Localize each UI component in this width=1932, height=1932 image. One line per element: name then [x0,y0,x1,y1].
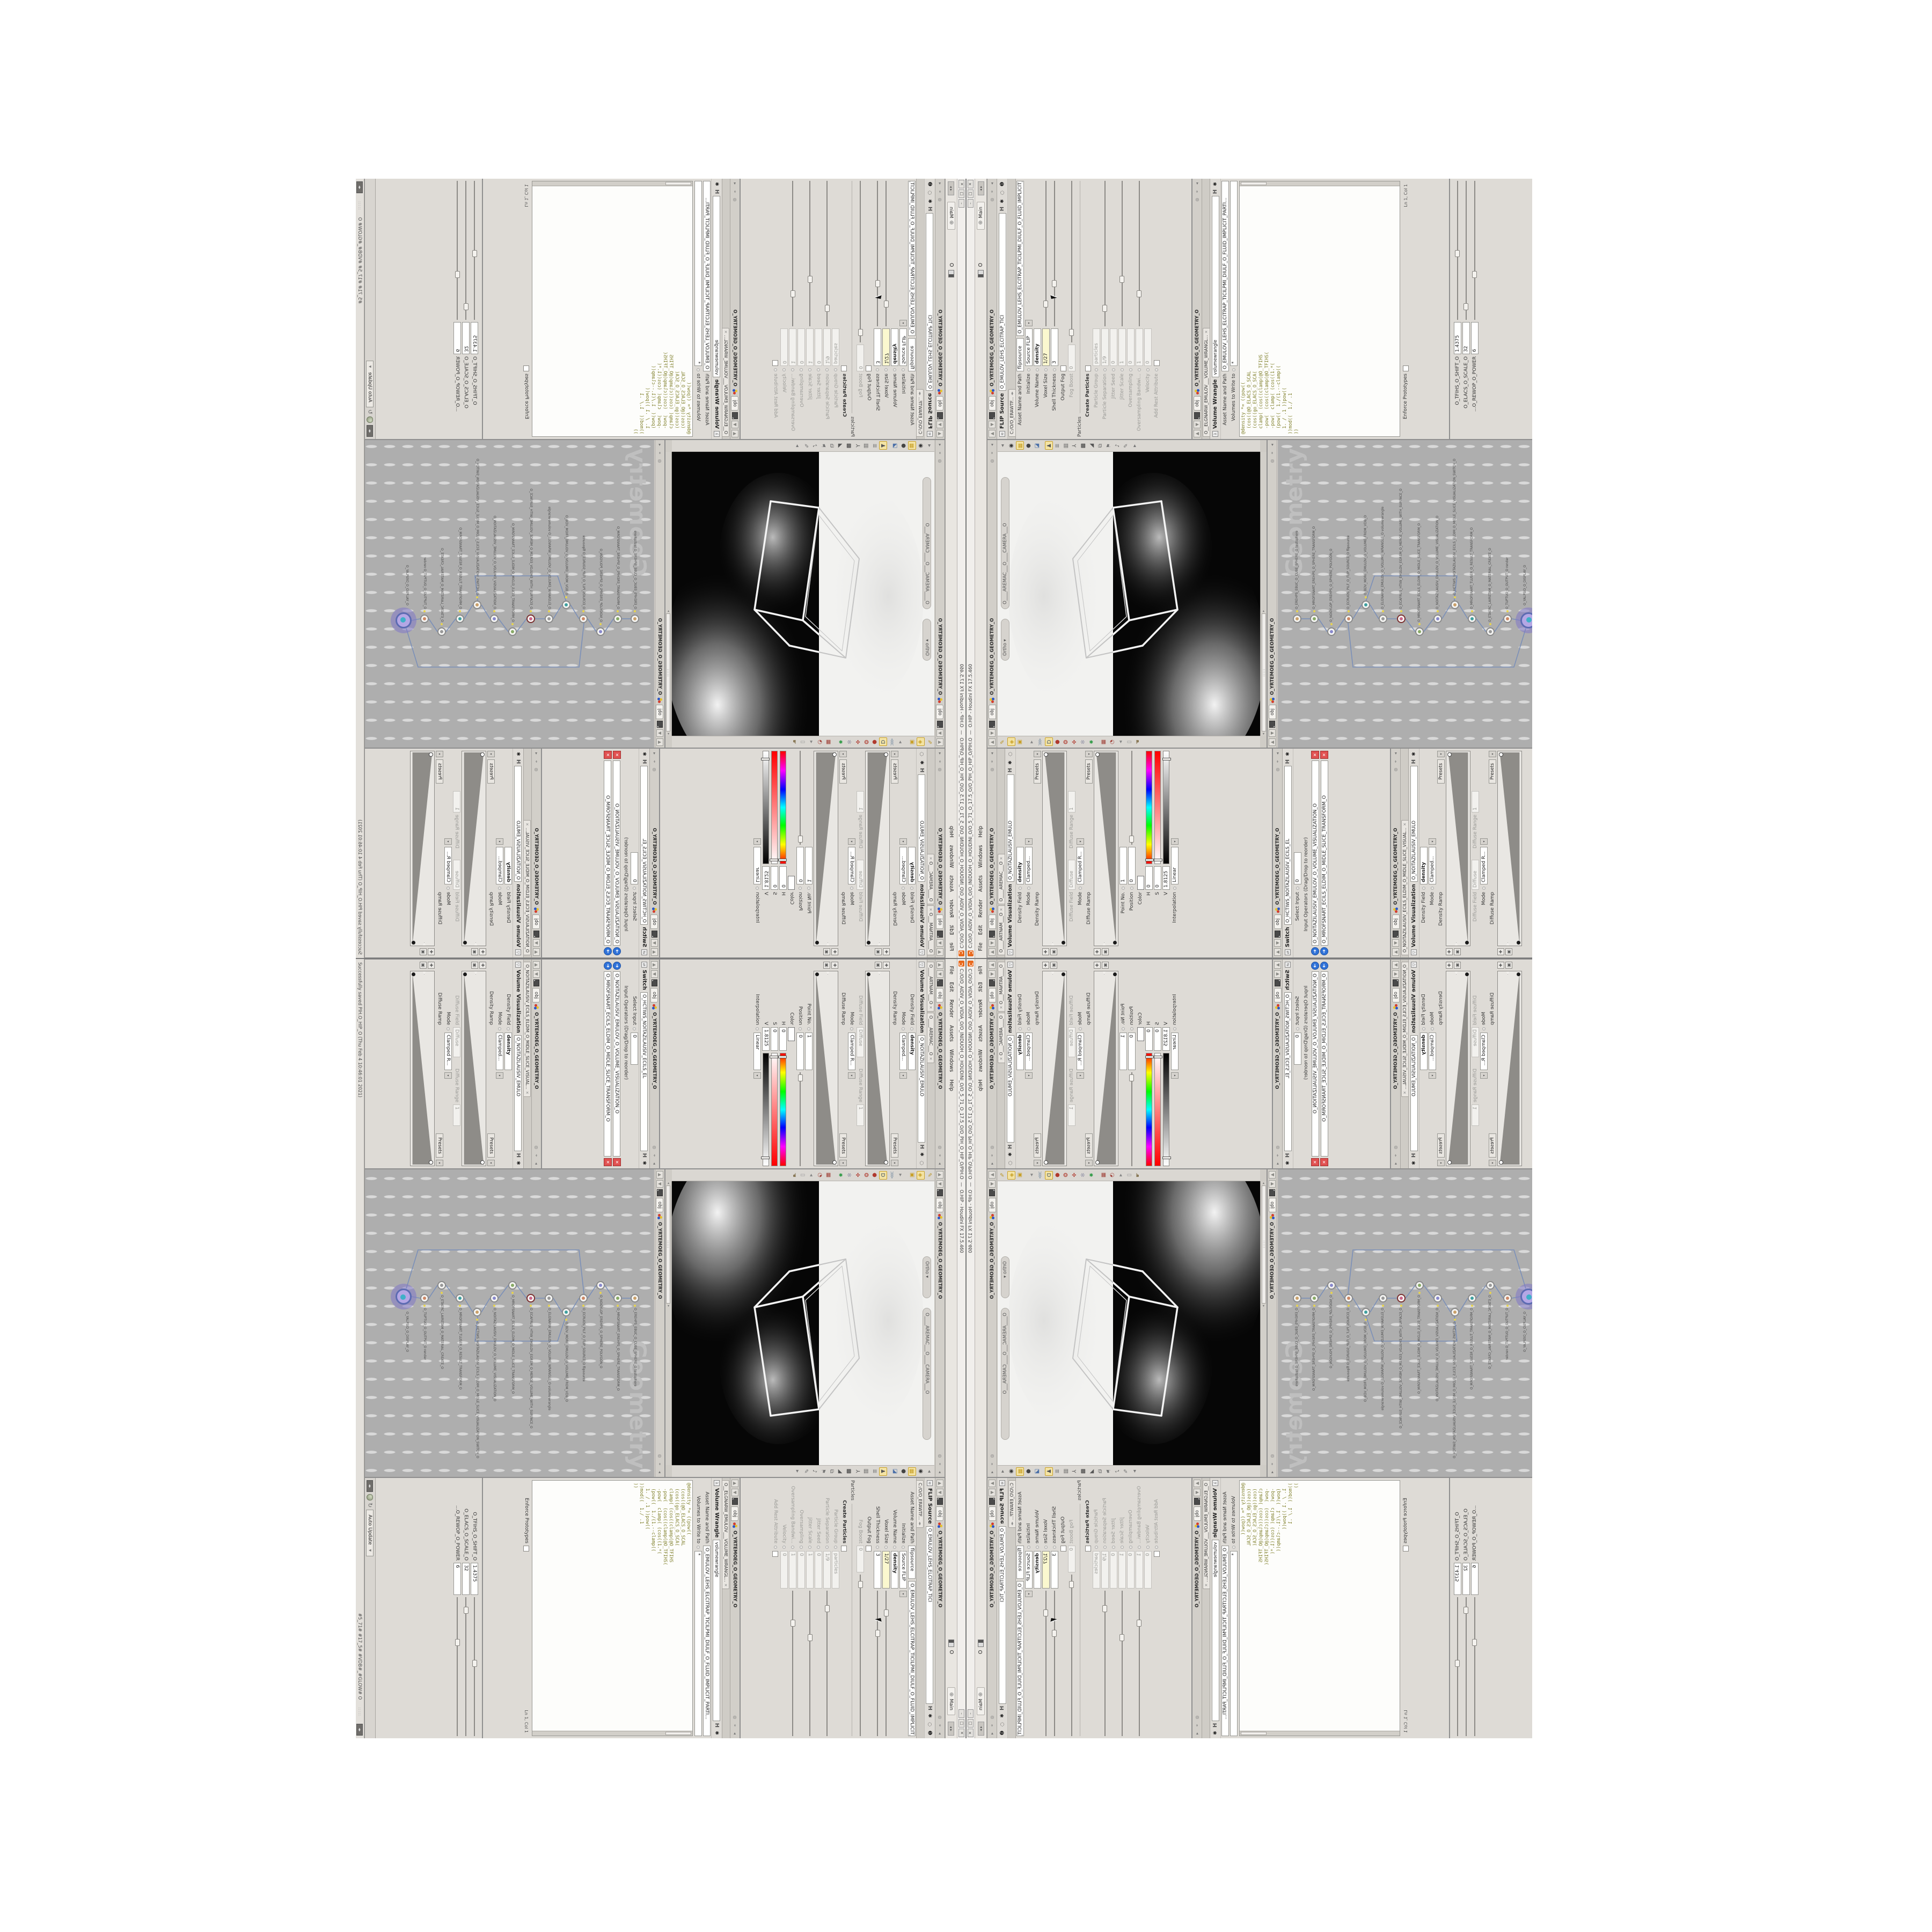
point-no-field[interactable]: 1 [805,1033,813,1070]
ramp-box-icon[interactable]: ▣ [1505,948,1512,955]
pin-icon[interactable]: ⌖ [989,1722,996,1729]
ramp-end-handle[interactable] [832,1160,837,1165]
node-name-field[interactable]: O_EMULOV_LEHS_ELCITRAP_TICI [926,1526,934,1704]
persp-view-icon[interactable]: ● [1024,1467,1033,1476]
diffuse-mode-field[interactable]: Clamped R... [1077,1033,1084,1070]
dropdown-arrows-icon[interactable]: ▾ [1171,838,1179,845]
network-node[interactable]: O_MROFSNART_ECILS_ELDIM_O_MIDLE_SLICE_TR… [1415,1281,1424,1290]
collapse-icon[interactable]: ◂ [533,1160,540,1167]
menu-scroll-handle[interactable]: ◂ ▸ [978,1722,984,1736]
node-flag-badge[interactable] [476,596,478,598]
obj-tab[interactable]: obj [1392,988,1400,1002]
desktop-clip-icon[interactable] [989,931,995,938]
nav-back-icon[interactable]: ▲ [731,1480,738,1487]
density-mode-field[interactable]: Clamped... [1025,1033,1033,1070]
pin-needle-icon[interactable]: ✎ [802,1467,810,1476]
network-node[interactable]: O_ECAFRUS_HTIW_EMULOV_EGREM_O_MERGE_VOLU… [526,1294,535,1302]
particle-group-field[interactable]: particles [832,1551,839,1589]
presets-menu-icon[interactable]: ▾ [1489,1160,1496,1166]
network-node[interactable]: O_BDV_MORF_EMULOV_O_VOLUME_FROM_VDB_O [562,601,570,609]
output-fog-checkbox[interactable] [866,365,872,371]
lasso-tool-icon[interactable]: ◔ [816,1171,824,1180]
obj-tab[interactable]: obj [651,914,658,929]
delete-input-button[interactable]: ✕ [613,751,621,759]
nav-forward-icon[interactable]: ▼ [1274,970,1281,978]
jitter-scale-field[interactable]: 1 [806,328,814,366]
target-icon[interactable]: ◎ [1269,1453,1276,1459]
network-path[interactable]: O_YRTEMOEG_O_GEOMETRY_O [652,1012,657,1089]
pane-tab[interactable]: O_NOITAZILAUSIV_ECILS_ELDIM_O_MIDLE_SLIC… [1401,962,1408,1097]
ramp-end-handle[interactable] [1499,752,1503,757]
diffuse-field-field[interactable]: Diffuse [1472,860,1479,890]
obj-tab[interactable]: obj [989,1506,996,1521]
title-bar[interactable]: C:/O/O_AIDIV_O_VIDIA_O/O_INIDUOH_O_HOUDI… [957,179,965,958]
node-name-field[interactable]: volumewrangle [1212,196,1219,377]
persp-view-icon[interactable]: ● [1024,442,1033,450]
nav-back-icon[interactable]: ▲ [936,1480,943,1487]
network-node[interactable]: O_ECRUOS_PILF_O_FLIP_SOURCE_O flipsource [1344,1294,1353,1302]
h-gradient-slider[interactable] [780,1053,786,1166]
gear-icon[interactable]: ✱ [919,1151,925,1158]
ramp-add-point-icon[interactable]: ✚ [1497,962,1504,969]
pane-corner-control[interactable]: ◂▸ [356,181,363,193]
interpolation-field[interactable]: Linear [753,1033,761,1070]
menu-edit[interactable]: Edit [977,921,985,939]
presets-button[interactable]: Presets [1085,759,1093,784]
ramp-marker[interactable] [877,971,882,975]
voxel-size-slider[interactable] [883,1591,889,1736]
particle-separation-slider[interactable] [1102,181,1108,326]
s-gradient-slider[interactable] [771,1053,778,1166]
node-name-field[interactable]: volumewrangle [1212,1540,1219,1721]
obj-tab[interactable]: obj [936,1198,944,1212]
maximize-button[interactable]: □ [968,1719,974,1728]
network-node[interactable]: O_MROFSNART_EREHPS_O_SPHERE_TRANSFORM_O [1310,614,1319,623]
pin-icon[interactable]: ⌖ [533,1152,540,1159]
tab-close-icon[interactable]: ✕ [524,1091,530,1094]
code-scrollbar[interactable] [1240,1731,1400,1736]
nav-back-icon[interactable]: ▲ [989,738,996,746]
s-gradient-slider[interactable] [1154,751,1161,864]
red-ball-tool-icon[interactable]: ● [870,738,879,747]
play-arrow-icon[interactable]: ▸ [1028,1171,1036,1180]
network-path[interactable]: O_YRTEMOEG_O_GEOMETRY_O [938,828,943,905]
target-icon[interactable]: ◎ [1275,1144,1281,1151]
label-strip-icon[interactable]: ≣ [870,442,879,450]
orbit-tool-icon[interactable]: ❂ [1062,738,1070,747]
network-path[interactable]: O_YRTEMOEG_O_GEOMETRY_O [938,1531,943,1607]
camera-person-icon[interactable]: ♟ [1045,1467,1053,1476]
star-tool-icon[interactable]: ✹ [836,1171,844,1180]
ramp-box-icon[interactable]: ▣ [471,948,478,955]
pin-icon[interactable]: ⌖ [937,1722,943,1729]
particle-separation-slider[interactable] [824,1591,830,1736]
network-node[interactable]: O_HCTIWS_NOITAZILAUSIV_ECILS_ELDIM_O_MID… [1451,601,1459,609]
viewport-canvas[interactable]: Ortho ▾ O____AREMAC___O____CAMERA___O [672,1181,934,1465]
scale-slider[interactable] [1463,181,1469,320]
initialize-field[interactable]: Source FLIP [1025,1551,1033,1589]
presets-button[interactable]: Presets [891,1133,898,1158]
ramp-add-point-icon[interactable]: ✚ [1446,962,1453,969]
nav-forward-icon[interactable]: ▼ [989,729,996,737]
presets-button[interactable]: Presets [1034,1133,1041,1158]
nav-back-icon[interactable]: ▲ [1392,948,1399,956]
desktop-clip-icon[interactable] [989,1498,995,1505]
slider-handle[interactable] [875,280,880,287]
position-field[interactable]: 0 [796,1033,804,1070]
ramp-start-handle[interactable] [815,972,819,976]
slider-handle[interactable] [791,1620,795,1627]
points-cube-icon[interactable]: ▩ [1079,442,1087,450]
ramp-fin-icon[interactable]: ◢ [1088,442,1096,450]
snap-diamond-icon[interactable]: ◈ [917,738,925,747]
pin-icon[interactable]: ⌖ [1393,1152,1399,1159]
desktop-clip-icon[interactable] [657,721,663,728]
ramp-marker[interactable] [1102,942,1107,946]
back-arrow-icon[interactable]: ◂ [1117,1171,1125,1180]
target-icon[interactable]: ◎ [657,458,663,464]
expand-arrow-icon[interactable]: ▸ [793,442,801,450]
dropdown-arrows-icon[interactable]: ▾ [1077,1072,1084,1079]
pane-split-control[interactable]: ◂▸ [367,1480,374,1492]
v-gradient-slider[interactable] [763,751,769,864]
quad-layout-icon[interactable]: ▦ [1016,442,1024,450]
target-icon[interactable]: ◎ [937,766,943,773]
pin-icon[interactable]: ⌖ [1194,188,1201,195]
camera-pill[interactable]: O____AREMAC___O____CAMERA___O [923,477,931,609]
node-flag-badge[interactable] [1348,610,1350,612]
ramp-add-point-icon[interactable]: ✚ [479,948,486,955]
network-path[interactable]: O_YRTEMOEG_O_GEOMETRY_O [1270,1222,1275,1299]
fog-boost-field[interactable]: 0 [857,1546,864,1572]
ramp-add-point-icon[interactable]: ✚ [1446,948,1453,955]
node-flag-badge[interactable] [1330,1292,1333,1294]
network-node[interactable]: O_ETAERC_LAIRETAM_O_MATERIAL_CREATE_O [1486,1281,1495,1290]
expand-arrow-icon[interactable]: ▸ [1131,1467,1139,1476]
jitter-scale-field[interactable]: 1 [1118,328,1126,366]
gear-icon[interactable]: ✱ [1411,751,1417,757]
particle-separation-slider[interactable] [1102,1591,1108,1736]
network-node[interactable]: O_MROFSNART_TLUSER_O_RESULT_TRANSFORM_O [456,614,464,623]
density-field-field[interactable]: density [908,847,916,884]
magnifier-icon[interactable]: ◌ [999,189,1006,196]
particles-section[interactable]: Particles [1076,1478,1084,1738]
nav-back-icon[interactable]: ▲ [936,961,943,969]
collapse-icon[interactable]: ◂ [657,1469,663,1475]
desktop-clip-icon[interactable] [989,412,995,419]
ramp-start-handle[interactable] [1465,941,1469,945]
pane-split-control[interactable]: ◂▸ [367,425,374,437]
star-tool-icon[interactable]: ✹ [1088,1171,1096,1180]
nav-back-icon[interactable]: ▲ [936,738,943,746]
obj-tab[interactable]: obj [1194,396,1201,411]
volumes-field[interactable]: * [1230,1551,1238,1736]
asset-name-field[interactable]: flipsource [1016,338,1024,371]
slider-mark[interactable] [1145,1056,1154,1058]
dropdown-arrows-icon[interactable]: ▾ [1429,1072,1436,1079]
desktop-clip-icon[interactable] [1275,979,1280,986]
add-rest-attribute-checkbox[interactable] [773,360,779,366]
nav-back-icon[interactable]: ▲ [533,961,540,969]
volumes-field[interactable]: * [694,181,702,366]
points-cube-icon[interactable]: ▩ [845,1467,853,1476]
density-field-field[interactable]: density [1016,847,1024,884]
network-node[interactable]: O_TUPTUO_O_OUTPUT_O render [420,1294,429,1302]
dropdown-arrows-icon[interactable]: ▾ [848,838,855,845]
pane-tab[interactable]: O_NOITAZILAUSIV_ECILS_ELDIM_O_MIDLE_SLIC… [524,962,531,1097]
slider-handle[interactable] [1052,280,1057,287]
pin-icon[interactable]: ⌖ [652,758,658,765]
refresh-icon[interactable]: ↻ [367,1503,374,1507]
network-path[interactable]: O_YRTEMOEG_O_GEOMETRY_O [1275,1012,1280,1089]
dropdown-arrows-icon[interactable]: ▾ [1025,838,1033,845]
nav-forward-icon[interactable]: ▼ [989,1180,996,1188]
play-arrow-icon[interactable]: ▸ [896,738,904,747]
pane-tab[interactable]: O____AREMAC___O✕ [998,854,1005,904]
snap-diamond-icon[interactable]: ◈ [1007,738,1015,747]
presets-button[interactable]: Presets [487,759,495,784]
ramp-start-handle[interactable] [1062,972,1065,976]
expand-arrow-icon[interactable]: ▸ [793,1467,801,1476]
node-flag-badge[interactable] [617,610,619,612]
pin-icon[interactable]: ⌖ [937,450,943,456]
star-tool-icon[interactable]: ✹ [836,738,844,747]
menu-o[interactable]: O [978,1650,984,1654]
asset-path-field[interactable]: O_EMULOV_LEHS_ELCITRAP_TICILPMI_DIULF_O_… [1016,1581,1024,1736]
presets-button[interactable]: Presets [1085,1133,1093,1158]
pane-tab[interactable]: O____AREMAC___O✕ [927,1013,934,1063]
node-name-field[interactable]: O_HCTIWS_NOITAZILAUSIV_ECILS_EL [641,766,648,925]
select-input-field[interactable]: 0 [1294,1033,1301,1065]
oversampling-field[interactable]: 0 [1127,1551,1135,1589]
wrangle-tab[interactable]: O__ELGNARW_EMULOV___VOLUME_WRANGL...✕ [1203,328,1210,437]
interpolation-field[interactable]: Linear [1171,1033,1179,1070]
viewport-scrollbar[interactable]: ◂:::::▸ [665,1181,672,1465]
delete-input-button[interactable]: ✕ [1320,751,1328,759]
particle-group-field[interactable]: particles [1093,328,1100,366]
ramp-box-icon[interactable]: ▣ [420,962,427,969]
node-flag-badge[interactable] [1489,1292,1491,1294]
node-name-field[interactable]: O_EMULOV_LEHS_ELCITRAP_TICI [999,1526,1006,1704]
barrel-icon[interactable]: ▥ [862,442,870,450]
pane-tab[interactable]: O_NOITAZILAUSIV_ECILS_ELDIM_O_MIDLE_SLIC… [524,820,531,955]
nav-back-icon[interactable]: ▲ [989,430,996,437]
asset-path-field[interactable]: O_EMULOV_LEHS_ELCITRAP_TICILPMI_DIULF_O_… [703,181,711,371]
network-path[interactable]: O_YRTEMOEG_O_GEOMETRY_O [938,310,943,386]
fog-boost-slider[interactable] [857,1575,863,1736]
pin-icon[interactable]: ⌖ [1393,758,1399,765]
menu-help[interactable]: Help [977,1075,985,1095]
grid-tool-icon[interactable]: ▦ [1100,738,1108,747]
obj-tab[interactable]: obj [533,988,540,1002]
desktop-selector[interactable]: ⊕ Main [977,1687,985,1715]
dropdown-arrows-icon[interactable]: ▾ [1025,1591,1033,1597]
back-arrow-icon[interactable]: ◂ [1117,738,1125,747]
ramp-fin-icon[interactable]: ◢ [836,1467,844,1476]
h-field[interactable]: 0 [1145,866,1153,890]
diffuse-field-field[interactable]: Diffuse [1068,860,1075,890]
power-slider[interactable] [1472,1597,1478,1736]
cross-tool-icon[interactable]: ✜ [1071,738,1079,747]
collapse-arrow-icon[interactable]: ◂ [999,1467,1007,1476]
ramp-start-handle[interactable] [1517,972,1520,976]
ortho-pill[interactable]: Ortho ▾ [1001,1256,1009,1298]
code-scrollbar[interactable] [1240,181,1400,186]
collapse-icon[interactable]: ◂ [1393,1160,1399,1167]
shell-thickness-field[interactable]: 3 [1051,1551,1058,1589]
pen-snap-icon[interactable]: ✎ [925,738,933,747]
nav-back-icon[interactable]: ▲ [533,948,540,956]
volume-name-field[interactable]: density [1034,1551,1041,1589]
slider-handle[interactable] [798,836,803,843]
collapse-icon[interactable]: ◂ [732,180,738,187]
ramp-marker[interactable] [1505,971,1510,975]
pane-tab[interactable]: O____ARTNAM___O✕ [927,905,934,955]
snap-box-icon[interactable]: ▣ [908,1171,916,1180]
ramp-end-handle[interactable] [884,752,888,757]
desktop-clip-icon[interactable] [533,979,539,986]
position-slider[interactable] [797,1072,803,1166]
pen-snap-icon[interactable]: ✎ [999,738,1007,747]
magnifier-icon[interactable]: ◌ [1007,751,1014,757]
slider-handle[interactable] [1119,1634,1124,1641]
asset-path-field[interactable]: O_EMULOV_LEHS_ELCITRAP_TICILPMI_DIULF_O_… [1221,1546,1229,1736]
node-flag-badge[interactable] [441,1292,443,1294]
asset-path-field[interactable]: O_EMULOV_LEHS_ELCITRAP_TICILPMI_DIULF_O_… [1221,181,1229,371]
nav-forward-icon[interactable]: ▼ [731,421,738,428]
nav-back-icon[interactable]: ▲ [989,1171,996,1179]
barrel-icon[interactable]: ▥ [862,1467,870,1476]
node-flag-badge[interactable] [1382,610,1384,612]
slider-mark[interactable] [1154,859,1162,861]
nav-back-icon[interactable]: ▲ [1194,1480,1201,1487]
slider-handle[interactable] [808,276,813,283]
density-mode-field[interactable]: Clamped... [496,1033,503,1070]
pin-icon[interactable]: ⌖ [937,1152,943,1159]
jitter-seed-field[interactable]: 0 [1110,328,1117,366]
network-node[interactable]: O_BDV_MORF_EMULOV_O_VOLUME_FROM_VDB_O [1362,601,1370,609]
node-flag-badge[interactable] [511,1292,514,1294]
diffuse-field-field[interactable]: Diffuse [857,1027,864,1057]
diffuse-range-field[interactable]: 1 [1472,791,1479,813]
v-gradient-slider[interactable] [1163,1053,1169,1166]
ramp-start-handle[interactable] [412,972,415,976]
menu-scroll-handle[interactable]: ◂ ▸ [948,1722,955,1736]
nav-forward-icon[interactable]: ▼ [936,939,943,947]
nav-forward-icon[interactable]: ▼ [656,729,663,737]
collapse-icon[interactable]: ◂ [657,442,663,448]
network-node[interactable]: O_ECRUOS_PILF_O_FLIP_SOURCE_O flipsource [1344,614,1353,623]
shift-slider[interactable] [1454,181,1461,320]
nav-forward-icon[interactable]: ▼ [651,970,658,978]
network-path[interactable]: O_YRTEMOEG_O_GEOMETRY_O [1195,310,1200,386]
slider-handle[interactable] [1455,250,1460,257]
dropdown-arrows-icon[interactable]: ▾ [899,838,907,845]
target-icon[interactable]: ◎ [989,458,996,464]
pin-icon[interactable]: ⌖ [732,188,738,195]
play-arrow-icon[interactable]: ▸ [1028,738,1036,747]
shift-field[interactable]: 1.4375 [471,322,478,354]
pane-tab[interactable]: O_NOITAZILAUSIV_ECILS_ELDIM_O_MIDLE_SLIC… [1401,820,1408,955]
node-flag-badge[interactable] [476,1319,478,1321]
pane-tab[interactable]: O____AREMAC___O✕ [927,854,934,904]
node-flag-badge[interactable] [1296,1305,1298,1307]
collapse-icon[interactable]: ◂ [989,1730,996,1737]
collapse-icon[interactable]: ◂ [1269,442,1276,448]
shell-thickness-field[interactable]: 3 [1051,328,1058,366]
position-slider[interactable] [797,751,803,845]
gear-icon[interactable]: ✱ [919,759,925,766]
ramp-end-handle[interactable] [429,752,433,757]
nav-forward-icon[interactable]: ▼ [936,729,943,737]
s-gradient-slider[interactable] [771,751,778,864]
snapshot-icon[interactable]: ◪ [1033,1467,1041,1476]
gear-icon[interactable]: ✱ [1007,1151,1014,1158]
network-path[interactable]: O_YRTEMOEG_O_GEOMETRY_O [990,1531,995,1607]
snap-diamond-icon[interactable]: ◈ [917,1171,925,1180]
ramp-end-handle[interactable] [480,1160,485,1165]
pin-icon[interactable]: ⌖ [937,758,943,765]
flag-icon[interactable]: ⚑ [1105,1467,1113,1476]
node-flag-badge[interactable] [1313,610,1315,612]
pen-snap-icon[interactable]: ✎ [999,1171,1007,1180]
slider-handle[interactable] [455,271,460,278]
refresh-icon[interactable]: ↻ [367,409,374,414]
nav-forward-icon[interactable]: ▼ [936,1489,943,1496]
wrangle-tab[interactable]: O__ELGNARW_EMULOV___VOLUME_WRANGL...✕ [722,1480,729,1589]
switch-input-field-0[interactable]: O_NOITAZILAUSIV_EMULOV_O_VOLUME_VISUALIZ… [1312,760,1319,946]
target-icon[interactable]: ◎ [989,1453,996,1459]
cards-icon[interactable]: ⧉ [828,1467,836,1476]
voxel-size-slider[interactable] [1043,1591,1049,1736]
title-bar[interactable]: C:/O/O_AIDIV_O_VIDIA_O/O_INIDUOH_O_HOUDI… [957,959,965,1738]
menu-assets[interactable]: Assets [947,872,955,896]
nav-back-icon[interactable]: ▲ [656,1171,663,1179]
add-rest-attribute-checkbox[interactable] [773,1551,779,1557]
collapse-icon[interactable]: ◂ [937,180,943,187]
slider-mark[interactable] [770,859,778,861]
desktop-clip-icon[interactable] [937,979,943,986]
nav-forward-icon[interactable]: ▼ [1392,970,1399,978]
node-flag-badge[interactable] [1348,1305,1350,1307]
network-node[interactable]: O_NOGYLOP_EREHPS_O_SPHERE_POLYGON_O [596,627,605,636]
node-flag-badge[interactable] [634,1305,636,1307]
node-flag-badge[interactable] [1471,610,1473,612]
obj-tab[interactable]: obj [989,1198,996,1212]
slider-handle[interactable] [1129,1074,1134,1081]
menu-help[interactable]: Help [977,822,985,841]
node-flag-badge[interactable] [1296,610,1298,612]
slider-handle[interactable] [1102,305,1107,312]
interpolation-field[interactable]: Linear [1171,847,1179,884]
desktop-selector[interactable]: ⊕ Main [977,202,985,230]
network-node[interactable]: O_ECAFRUS_HTIW_EMULOV_EGREM_O_MERGE_VOLU… [1397,1294,1406,1302]
asset-path-field[interactable]: O_EMULOV_LEHS_ELCITRAP_TICILPMI_DIULF_O_… [908,1581,916,1736]
density-mode-field[interactable]: Clamped... [1025,847,1033,884]
dropdown-arrows-icon[interactable]: ▾ [496,838,503,845]
tripod-icon[interactable]: ⅄ [853,1467,861,1476]
density-ramp-ramp[interactable] [1446,751,1470,946]
tab-close-icon[interactable]: ✕ [927,857,934,860]
camera-person-icon[interactable]: ♟ [879,442,887,450]
minimize-button[interactable]: – [958,1709,964,1718]
nav-back-icon[interactable]: ▲ [656,738,663,746]
gear-icon[interactable]: ✱ [1411,1160,1417,1166]
camera-person-icon[interactable]: ♟ [1045,442,1053,450]
ramp-marker[interactable] [1050,942,1055,946]
nav-back-icon[interactable]: ▲ [651,961,658,969]
collapse-icon[interactable]: ◂ [1194,180,1201,187]
